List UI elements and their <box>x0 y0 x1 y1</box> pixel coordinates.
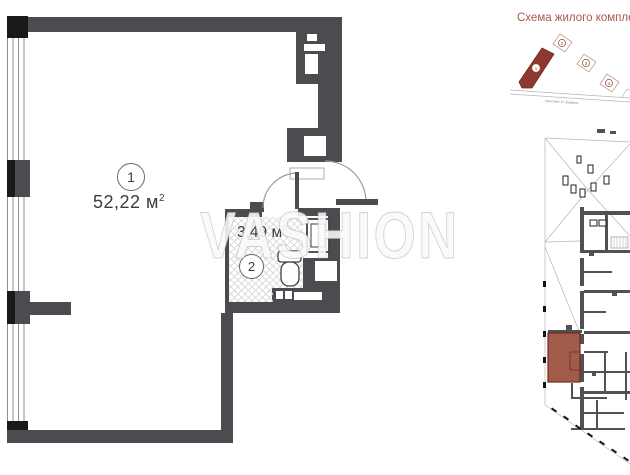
street-label: проспект Н. Бажана <box>545 99 578 105</box>
entry-door-swing-arc <box>325 161 366 202</box>
room-1-number: 1 <box>127 169 135 185</box>
building-floor-plan <box>543 129 630 464</box>
interior-stub-wall <box>29 302 71 315</box>
stairs <box>611 237 628 248</box>
site-building-partial <box>622 89 630 97</box>
site-scheme-title: Схема жилого комплекса <box>517 12 630 24</box>
site-map: проспект Н. Бажана 1 2 3 4 <box>510 34 630 105</box>
vent-shaft <box>296 32 342 84</box>
window-band <box>8 31 25 431</box>
room-1-area: 52,22 м2 <box>93 192 165 213</box>
floorplan-page: проспект Н. Бажана 1 2 3 4 <box>0 0 630 475</box>
highlighted-unit <box>548 333 580 382</box>
room-1-number-badge: 1 <box>117 163 145 191</box>
watermark: VASHION <box>200 197 460 273</box>
corner-pier <box>7 16 28 38</box>
